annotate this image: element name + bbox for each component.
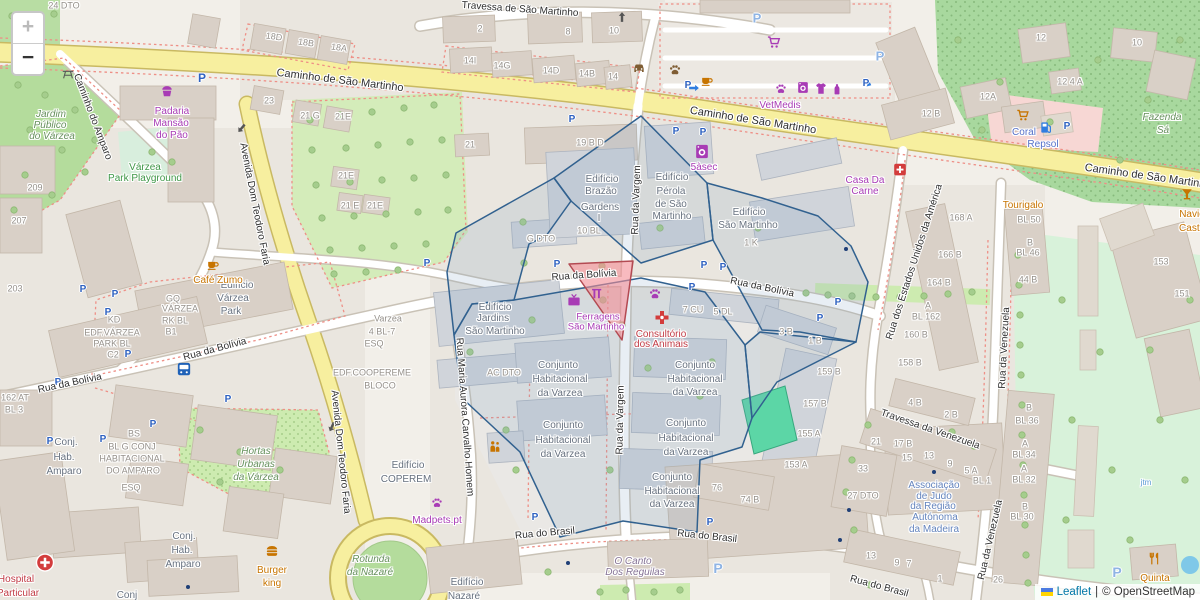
tree [1069,417,1075,423]
tree [431,102,437,108]
building [1001,101,1046,133]
tree [277,467,283,473]
map-tiles [0,0,1200,600]
building [700,0,850,13]
building [443,15,496,43]
tree [395,267,401,273]
tree [955,37,961,43]
tree [1182,477,1188,483]
tree [1157,417,1163,423]
building [188,14,221,48]
zoom-control: + − [11,11,45,76]
building [607,538,708,579]
attribution-bar: Leaflet | © OpenStreetMap [1035,584,1200,600]
tree [197,427,203,433]
tree [363,269,369,275]
tree [513,467,519,473]
tree [149,149,155,155]
zoom-in-button[interactable]: + [13,13,43,44]
tree [92,137,98,143]
tree [391,243,397,249]
tree [383,211,389,217]
building [317,36,351,65]
tree [82,169,88,175]
building [1111,28,1158,62]
leaflet-link[interactable]: Leaflet [1057,586,1092,598]
building [0,198,42,253]
tree [1187,297,1193,303]
tree [945,291,951,297]
building [337,192,363,213]
tree [439,137,445,143]
building [285,30,319,59]
tree [22,172,28,178]
tree [59,147,65,153]
tree [313,182,319,188]
building [250,23,286,54]
tree [1022,522,1028,528]
building [1068,530,1094,568]
tree [1023,552,1029,558]
tree [969,289,975,295]
tree [15,82,21,88]
tree [623,587,629,593]
building [191,405,278,471]
tree [873,294,879,300]
ukraine-flag-icon [1041,588,1053,596]
building [591,11,642,43]
tree [1016,282,1022,288]
building [532,55,576,83]
tree [867,582,873,588]
tree [343,145,349,151]
tree [1025,580,1031,586]
building [1041,112,1073,136]
tree [423,241,429,247]
building [0,390,52,446]
tree [359,245,365,251]
attribution-separator: | [1095,586,1098,598]
tree [51,11,57,17]
tree [1063,517,1069,523]
tree [1147,347,1153,353]
tree [347,179,353,185]
building [147,556,239,597]
openstreetmap-link[interactable]: © OpenStreetMap [1102,586,1195,598]
tree [843,489,849,495]
tree [42,92,48,98]
building [1049,68,1082,94]
building [292,100,321,126]
tree [1145,97,1151,103]
tree [27,127,33,133]
tree [1019,432,1025,438]
tree [979,127,985,133]
tree [337,112,343,118]
building [1130,544,1179,580]
tree [327,247,333,253]
tree [921,293,927,299]
tree [677,587,683,593]
tree [1021,492,1027,498]
tree [1097,349,1103,355]
zoom-out-button[interactable]: − [13,44,43,74]
tree [971,443,977,449]
tree [411,175,417,181]
building [426,538,522,593]
tree [415,209,421,215]
tree [369,109,375,115]
building [120,86,216,120]
tree [331,271,337,277]
tree [865,422,871,428]
building [109,385,193,447]
tree [169,159,175,165]
building [454,133,489,157]
tree [375,142,381,148]
tree [597,589,603,595]
building [491,51,533,78]
tree [351,213,357,219]
tree [949,429,955,435]
tree [217,479,223,485]
tree [1017,312,1023,318]
map-canvas[interactable]: Travessa de São MartinhoCaminho de São M… [0,0,1200,600]
tree [407,139,413,145]
tree [1047,119,1053,125]
tree [237,449,243,455]
tree [545,569,551,575]
tree [309,147,315,153]
tree [49,192,55,198]
tree [379,177,385,183]
tree [1127,537,1133,543]
tree [72,107,78,113]
tree [443,172,449,178]
tree [897,294,903,300]
tree [997,79,1003,85]
tree [651,589,657,595]
building [604,65,632,90]
tree [851,527,857,533]
building [1004,207,1049,296]
tree [319,215,325,221]
tree [1109,467,1115,473]
building [831,446,897,517]
tree [1017,342,1023,348]
building [1074,426,1099,517]
tree [849,457,855,463]
tree [1018,372,1024,378]
tree [1177,37,1183,43]
building [223,486,284,538]
building [527,12,582,44]
tree [401,105,407,111]
building [250,86,284,115]
tree [1117,157,1123,163]
building [125,456,188,506]
building [1078,226,1098,316]
building [449,47,492,73]
building [323,106,352,132]
building [1080,330,1096,370]
tree [307,117,313,123]
tree [11,207,17,213]
building [1018,23,1070,63]
building [0,146,55,194]
tree [445,207,451,213]
tree [1095,57,1101,63]
tree [1019,402,1025,408]
tree [1059,297,1065,303]
tree [1020,462,1026,468]
building [1146,50,1196,100]
building [331,166,360,189]
tree [1015,252,1021,258]
